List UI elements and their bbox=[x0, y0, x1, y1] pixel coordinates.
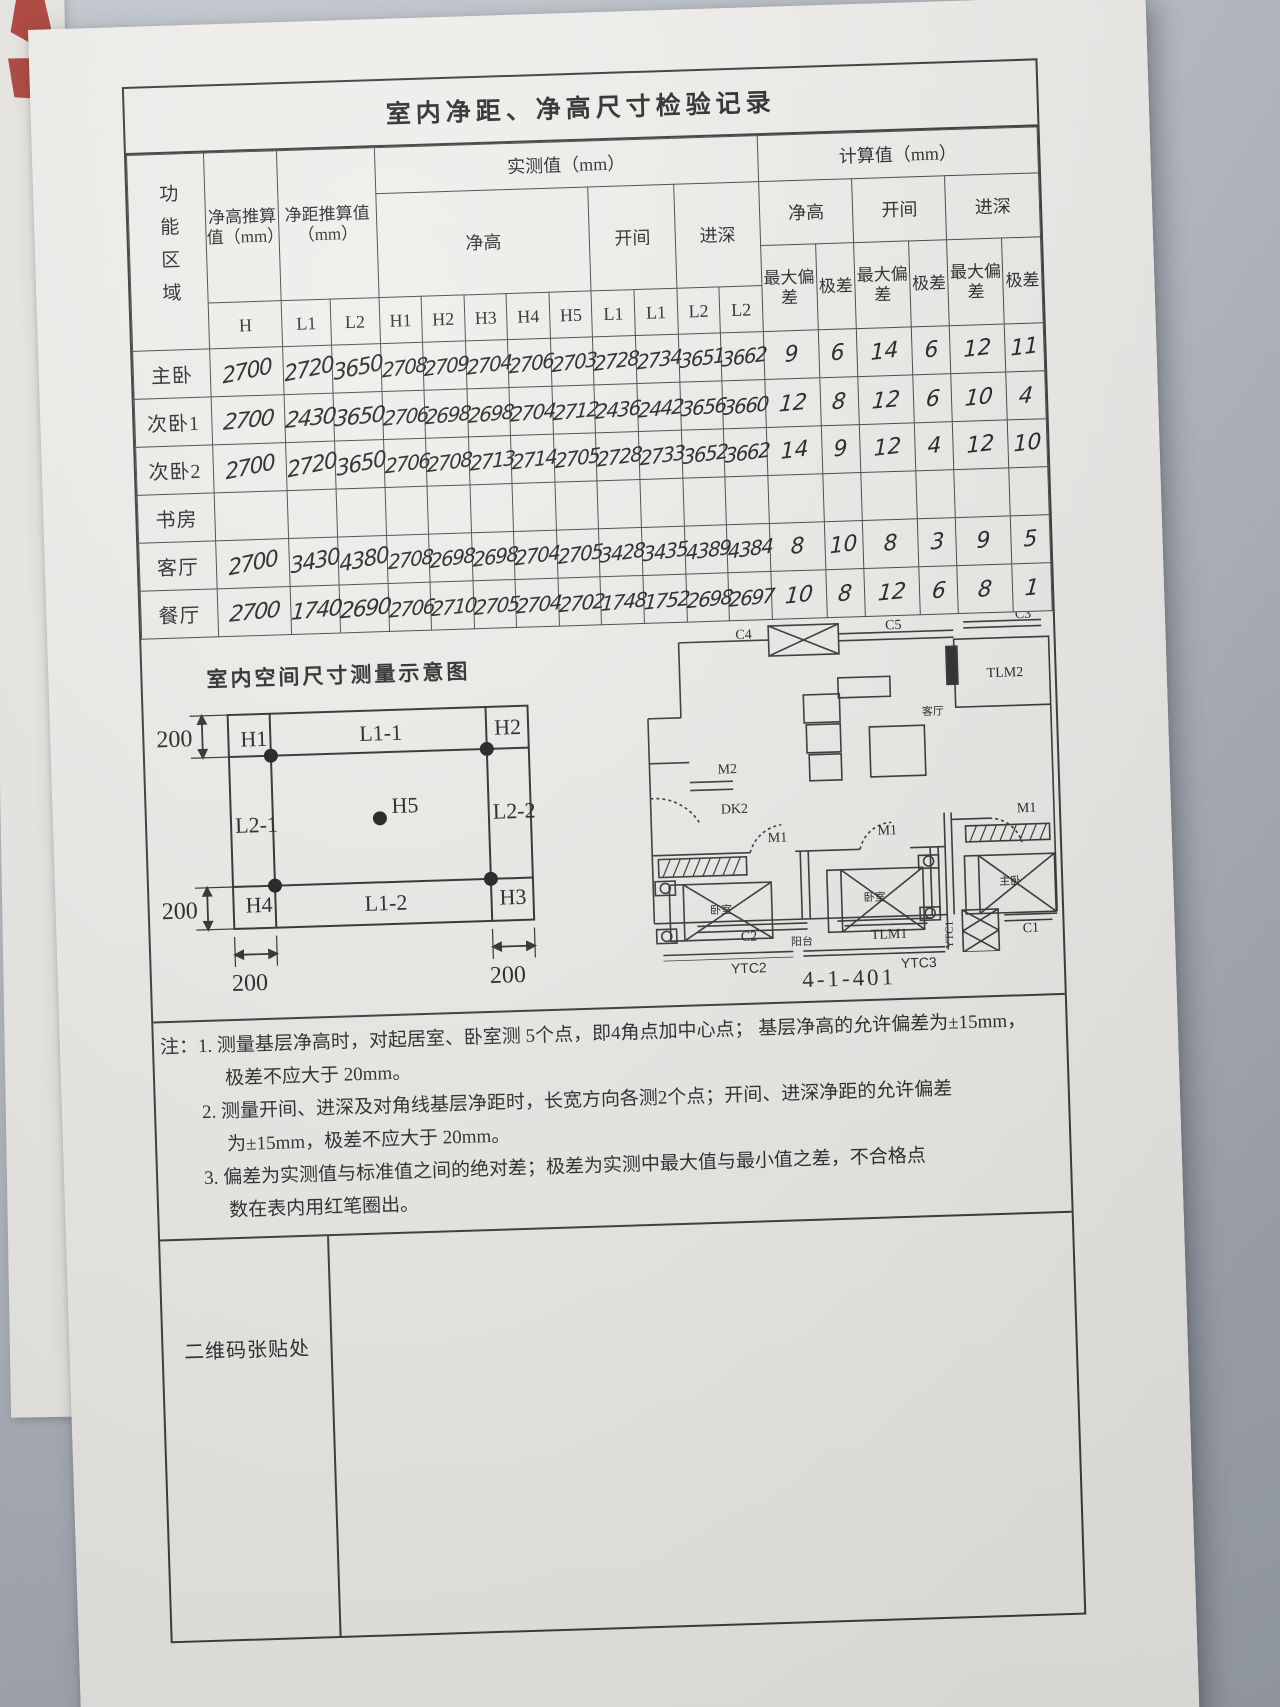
handwritten-value: 6 bbox=[925, 386, 941, 413]
dim-200-bottom-left: 200 bbox=[161, 898, 198, 925]
handwritten-value: 2710 bbox=[430, 592, 477, 621]
plan-label-balcony: 阳台 bbox=[791, 934, 813, 949]
handwritten-value: 9 bbox=[977, 527, 991, 554]
value-cell: 14 bbox=[766, 426, 822, 476]
value-cell: 2697 bbox=[728, 571, 772, 620]
value-cell: 2704 bbox=[514, 530, 558, 579]
value-cell: 14 bbox=[856, 327, 912, 377]
handwritten-value: 2720 bbox=[284, 352, 335, 387]
value-cell: 2720 bbox=[283, 345, 333, 395]
handwritten-value: 12 bbox=[967, 431, 995, 460]
value-cell: 1748 bbox=[600, 575, 644, 624]
group-measured-bay: 开间 bbox=[588, 184, 676, 291]
handwritten-value: 1740 bbox=[290, 596, 342, 626]
handwritten-value: 8 bbox=[831, 389, 847, 416]
handwritten-value: 8 bbox=[790, 533, 804, 560]
header-max-deviation: 最大偏差 bbox=[947, 238, 1004, 326]
value-cell: 1752 bbox=[643, 574, 687, 623]
handwritten-value: 2706 bbox=[384, 448, 429, 478]
handwritten-value: 3435 bbox=[643, 536, 688, 566]
value-cell: 3650 bbox=[331, 344, 381, 394]
function-area-label: 客厅 bbox=[139, 541, 218, 591]
handwritten-value: 3662 bbox=[722, 341, 767, 371]
sub-header: H1 bbox=[379, 296, 423, 343]
handwritten-value: 2708 bbox=[427, 446, 472, 476]
sub-header: H bbox=[208, 301, 282, 349]
value-cell: 2705 bbox=[556, 529, 600, 578]
handwritten-value: 2430 bbox=[284, 404, 336, 434]
plan-label-c4: C4 bbox=[735, 628, 752, 644]
value-cell: 2708 bbox=[426, 437, 470, 486]
value-cell: 2700 bbox=[213, 443, 288, 493]
value-cell: 3435 bbox=[641, 526, 685, 575]
value-cell: 2734 bbox=[635, 334, 679, 383]
function-area-label: 书房 bbox=[137, 493, 216, 543]
value-cell: 3428 bbox=[599, 527, 643, 576]
handwritten-value: 10 bbox=[1014, 429, 1042, 458]
handwritten-value: 2705 bbox=[555, 442, 600, 472]
diagram-length-l2-1: L2-1 bbox=[235, 812, 279, 838]
value-cell: 2706 bbox=[508, 338, 552, 387]
handwritten-value: 12 bbox=[964, 335, 992, 364]
handwritten-value: 2698 bbox=[467, 399, 514, 428]
handwritten-value: 2700 bbox=[228, 597, 280, 627]
value-cell: 2714 bbox=[511, 434, 555, 483]
value-cell: 2706 bbox=[388, 582, 432, 631]
value-cell bbox=[683, 477, 727, 526]
handwritten-value: 2690 bbox=[339, 594, 391, 624]
value-cell: 2700 bbox=[211, 395, 286, 445]
value-cell: 2713 bbox=[468, 436, 512, 485]
plan-caption: 4-1-401 bbox=[634, 959, 1065, 998]
qr-cell-label: 二维码张贴处 bbox=[163, 1331, 331, 1365]
value-cell bbox=[768, 474, 824, 524]
qr-code-cell: 二维码张贴处 bbox=[160, 1236, 341, 1641]
handwritten-value: 4389 bbox=[685, 534, 730, 564]
handwritten-value: 2708 bbox=[381, 352, 426, 382]
value-cell bbox=[512, 482, 556, 531]
handwritten-value: 12 bbox=[877, 579, 907, 607]
value-cell bbox=[470, 484, 514, 533]
dim-200-top-left: 200 bbox=[156, 726, 193, 753]
value-cell: 2705 bbox=[553, 433, 597, 482]
value-cell bbox=[725, 475, 769, 524]
value-cell: 2710 bbox=[430, 581, 474, 630]
measurement-table: 功能区域 净高推算值（mm） 净距推算值（mm） 实测值（mm） 计算值（mm）… bbox=[126, 126, 1053, 639]
value-cell: 12 bbox=[953, 420, 1009, 470]
value-cell: 2702 bbox=[558, 577, 602, 626]
handwritten-value: 2705 bbox=[558, 538, 603, 568]
handwritten-value: 2703 bbox=[552, 346, 597, 376]
value-cell: 2708 bbox=[380, 342, 424, 391]
value-cell: 4 bbox=[914, 422, 954, 471]
function-area-label: 餐厅 bbox=[140, 589, 219, 639]
value-cell: 2698 bbox=[686, 573, 730, 622]
handwritten-value: 4 bbox=[927, 433, 941, 460]
diagram-point-h5: H5 bbox=[391, 792, 419, 818]
handwritten-value: 2728 bbox=[597, 441, 642, 471]
handwritten-value: 2706 bbox=[509, 348, 554, 378]
value-cell: 5 bbox=[1010, 515, 1050, 564]
value-cell bbox=[916, 470, 956, 519]
value-cell: 2705 bbox=[473, 579, 517, 628]
value-cell: 2728 bbox=[593, 336, 637, 385]
plan-label-m2: M2 bbox=[717, 762, 737, 778]
inspection-form-paper: 室内净距、净高尺寸检验记录 功能区域 净高推算值（mm） 净距推算值（mm） 实… bbox=[28, 0, 1202, 1707]
value-cell bbox=[640, 478, 684, 527]
diagram-point-h1: H1 bbox=[240, 726, 268, 752]
plan-label-dk2: DK2 bbox=[721, 802, 749, 818]
function-area-label: 次卧1 bbox=[134, 397, 213, 447]
handwritten-value: 2704 bbox=[515, 540, 560, 570]
value-cell bbox=[597, 479, 641, 528]
value-cell: 6 bbox=[919, 566, 959, 615]
blank-cell bbox=[329, 1213, 1084, 1636]
value-cell: 2698 bbox=[424, 389, 468, 438]
value-cell: 2712 bbox=[552, 385, 596, 434]
dim-200-bottom-2: 200 bbox=[490, 962, 527, 989]
sub-header: L2 bbox=[677, 287, 721, 334]
value-cell bbox=[954, 468, 1010, 518]
value-cell bbox=[861, 471, 917, 521]
value-cell: 2698 bbox=[471, 531, 515, 580]
value-cell: 3652 bbox=[681, 429, 725, 478]
handwritten-value: 2436 bbox=[595, 395, 642, 424]
value-cell: 9 bbox=[821, 425, 861, 474]
plan-label-c1: C1 bbox=[1022, 921, 1039, 937]
handwritten-value: 4 bbox=[1018, 383, 1034, 410]
group-computed-height: 净高 bbox=[759, 179, 854, 246]
value-cell: 2733 bbox=[638, 430, 682, 479]
plan-label-master-bedroom: 主卧 bbox=[999, 874, 1021, 888]
value-cell: 2698 bbox=[467, 388, 511, 437]
diagram-point-h2: H2 bbox=[494, 714, 522, 740]
col-header-height-calc: 净高推算值（mm） bbox=[204, 151, 282, 303]
handwritten-value: 11 bbox=[1011, 333, 1039, 362]
function-area-label: 次卧2 bbox=[136, 445, 215, 495]
value-cell: 12 bbox=[858, 375, 914, 425]
value-cell: 2709 bbox=[423, 341, 467, 390]
group-computed-depth: 进深 bbox=[945, 173, 1040, 240]
handwritten-value: 1748 bbox=[601, 587, 648, 616]
handwritten-value: 2698 bbox=[686, 584, 733, 613]
value-cell: 2708 bbox=[386, 534, 430, 583]
handwritten-value: 9 bbox=[784, 341, 798, 368]
handwritten-value: 2706 bbox=[382, 401, 429, 430]
value-cell bbox=[336, 488, 386, 538]
handwritten-value: 2709 bbox=[424, 350, 469, 380]
handwritten-value: 8 bbox=[977, 576, 993, 603]
value-cell: 8 bbox=[957, 564, 1013, 614]
value-cell: 2700 bbox=[216, 539, 291, 589]
handwritten-value: 2704 bbox=[509, 397, 556, 426]
sub-header: H3 bbox=[464, 294, 508, 341]
value-cell: 4384 bbox=[727, 523, 771, 572]
value-cell bbox=[555, 481, 599, 530]
handwritten-value: 1 bbox=[1024, 575, 1040, 602]
plan-label-tlm1: TLM1 bbox=[871, 927, 908, 943]
handwritten-value: 6 bbox=[924, 337, 938, 364]
handwritten-value: 2713 bbox=[469, 445, 514, 475]
value-cell: 2700 bbox=[217, 587, 292, 637]
value-cell: 8 bbox=[819, 377, 859, 426]
value-cell: 11 bbox=[1004, 323, 1044, 372]
value-cell: 10 bbox=[1007, 419, 1047, 468]
handwritten-value: 2704 bbox=[515, 589, 562, 618]
handwritten-value: 2702 bbox=[558, 588, 605, 617]
sub-header: L2 bbox=[719, 286, 763, 333]
handwritten-value: 2728 bbox=[594, 345, 639, 375]
handwritten-value: 12 bbox=[874, 433, 902, 462]
handwritten-value: 3662 bbox=[725, 437, 770, 467]
value-cell: 3430 bbox=[289, 537, 339, 587]
handwritten-value: 2708 bbox=[387, 544, 432, 574]
header-range: 极差 bbox=[815, 243, 856, 330]
group-measured-height: 净高 bbox=[375, 187, 591, 298]
plan-label-tlm2: TLM2 bbox=[986, 665, 1023, 681]
handwritten-value: 2697 bbox=[728, 583, 775, 612]
value-cell: 1740 bbox=[290, 585, 340, 635]
plan-label-m1: M1 bbox=[1017, 801, 1037, 817]
function-area-label: 主卧 bbox=[133, 349, 212, 399]
notes-section: 注：1. 测量基层净高时，对起居室、卧室测 5个点，即4角点加中心点； 基层净高… bbox=[153, 995, 1071, 1242]
value-cell: 6 bbox=[818, 329, 858, 378]
diagram-point-h4: H4 bbox=[245, 892, 273, 918]
handwritten-value: 12 bbox=[778, 390, 808, 418]
handwritten-value: 2733 bbox=[640, 440, 685, 470]
sub-header: L1 bbox=[591, 290, 635, 337]
handwritten-value: 6 bbox=[931, 578, 947, 605]
sub-header: L1 bbox=[634, 288, 678, 335]
handwritten-value: 10 bbox=[784, 581, 814, 609]
plan-label-bedroom: 卧室 bbox=[863, 889, 885, 904]
value-cell: 2690 bbox=[339, 583, 389, 633]
handwritten-value: 2734 bbox=[637, 344, 682, 374]
header-max-deviation: 最大偏差 bbox=[761, 244, 818, 332]
handwritten-value: 2700 bbox=[222, 406, 274, 436]
handwritten-value: 2700 bbox=[225, 450, 276, 485]
plan-label-ytc1: YTC1 bbox=[943, 921, 956, 949]
value-cell: 3650 bbox=[333, 392, 383, 442]
footer-section: 二维码张贴处 bbox=[160, 1213, 1084, 1641]
handwritten-value: 12 bbox=[871, 387, 901, 415]
handwritten-value: 8 bbox=[837, 581, 853, 608]
value-cell bbox=[287, 489, 337, 539]
value-cell: 2706 bbox=[383, 438, 427, 487]
handwritten-value: 3430 bbox=[290, 544, 341, 579]
handwritten-value: 4384 bbox=[728, 533, 773, 563]
diagram-length-l1-2: L1-2 bbox=[364, 890, 408, 916]
value-cell bbox=[822, 473, 862, 522]
plan-label-m1: M1 bbox=[877, 823, 897, 839]
value-cell: 8 bbox=[863, 519, 919, 569]
handwritten-value: 2698 bbox=[472, 541, 517, 571]
header-range: 极差 bbox=[1002, 237, 1043, 324]
handwritten-value: 2705 bbox=[473, 591, 520, 620]
dim-200-bottom-1: 200 bbox=[232, 970, 269, 997]
value-cell: 10 bbox=[951, 372, 1007, 422]
middle-section: 室内空间尺寸测量示意图 bbox=[141, 611, 1065, 1023]
value-cell: 2728 bbox=[596, 432, 640, 481]
group-computed-bay: 开间 bbox=[852, 176, 947, 243]
photo-scene: 室内净距、净高尺寸检验记录 功能区域 净高推算值（mm） 净距推算值（mm） 实… bbox=[0, 0, 1280, 1707]
form-frame: 室内净距、净高尺寸检验记录 功能区域 净高推算值（mm） 净距推算值（mm） 实… bbox=[122, 58, 1086, 1643]
handwritten-value: 3651 bbox=[679, 342, 724, 372]
value-cell: 2442 bbox=[637, 382, 681, 431]
value-cell: 12 bbox=[950, 324, 1006, 374]
diagram-point-h3: H3 bbox=[499, 884, 527, 910]
handwritten-value: 3 bbox=[930, 529, 944, 556]
value-cell: 3651 bbox=[678, 333, 722, 382]
value-cell bbox=[385, 486, 429, 535]
plan-label-c3: C3 bbox=[1015, 611, 1032, 622]
handwritten-value: 3650 bbox=[335, 447, 386, 482]
value-cell: 12 bbox=[864, 567, 920, 617]
value-cell: 3662 bbox=[721, 332, 765, 381]
value-cell: 12 bbox=[859, 423, 915, 473]
sub-header: H4 bbox=[506, 292, 550, 339]
handwritten-value: 5 bbox=[1024, 526, 1038, 553]
value-cell: 8 bbox=[769, 522, 825, 572]
handwritten-value: 1752 bbox=[643, 585, 690, 614]
value-cell: 1 bbox=[1012, 563, 1052, 612]
value-cell bbox=[1009, 467, 1049, 516]
group-measured-depth: 进深 bbox=[673, 182, 761, 289]
value-cell: 4389 bbox=[684, 525, 728, 574]
value-cell: 2720 bbox=[286, 441, 336, 491]
value-cell: 4 bbox=[1006, 371, 1046, 420]
measurement-diagram: H1 H2 H3 H4 H5 L1-1 L1-2 L2-1 L2-2 bbox=[143, 681, 631, 1008]
handwritten-value: 14 bbox=[780, 436, 808, 465]
handwritten-value: 2700 bbox=[222, 354, 273, 389]
handwritten-value: 3656 bbox=[680, 392, 727, 421]
handwritten-value: 2698 bbox=[430, 542, 475, 572]
sub-header: L1 bbox=[281, 299, 331, 347]
value-cell: 2430 bbox=[284, 393, 334, 443]
handwritten-value: 9 bbox=[834, 436, 848, 463]
measurement-diagram-panel: 室内空间尺寸测量示意图 bbox=[141, 625, 635, 1022]
value-cell: 3660 bbox=[722, 380, 766, 429]
value-cell: 12 bbox=[765, 378, 821, 428]
handwritten-value: 3428 bbox=[600, 537, 645, 567]
col-header-clearance-calc: 净距推算值（mm） bbox=[277, 148, 379, 301]
handwritten-value: 4380 bbox=[338, 543, 389, 578]
value-cell: 2706 bbox=[382, 390, 426, 439]
handwritten-value: 3650 bbox=[332, 351, 383, 386]
value-cell: 6 bbox=[913, 374, 953, 423]
plan-label-living-room: 客厅 bbox=[922, 704, 944, 719]
handwritten-value: 2720 bbox=[287, 448, 338, 483]
value-cell bbox=[427, 485, 471, 534]
value-cell: 10 bbox=[771, 570, 827, 620]
sub-header: L2 bbox=[330, 298, 380, 346]
handwritten-value: 3652 bbox=[682, 438, 727, 468]
handwritten-value: 2442 bbox=[637, 393, 684, 422]
handwritten-value: 2714 bbox=[512, 444, 557, 474]
handwritten-value: 8 bbox=[884, 530, 898, 557]
handwritten-value: 2698 bbox=[424, 400, 471, 429]
diagram-length-l1-1: L1-1 bbox=[359, 720, 403, 746]
value-cell: 3656 bbox=[680, 381, 724, 430]
handwritten-value: 2700 bbox=[228, 546, 279, 581]
header-range: 极差 bbox=[909, 240, 950, 327]
value-cell: 2704 bbox=[515, 578, 559, 627]
value-cell: 2704 bbox=[509, 386, 553, 435]
value-cell: 2700 bbox=[210, 347, 285, 397]
handwritten-value: 2704 bbox=[466, 349, 511, 379]
value-cell: 3650 bbox=[334, 440, 384, 490]
col-header-function-area: 功能区域 bbox=[126, 153, 209, 351]
value-cell: 3662 bbox=[724, 428, 768, 477]
diagram-length-l2-2: L2-2 bbox=[492, 797, 536, 823]
plan-label-bedroom: 卧室 bbox=[710, 902, 732, 917]
value-cell: 4380 bbox=[337, 536, 387, 586]
value-cell: 9 bbox=[956, 516, 1012, 566]
handwritten-value: 3660 bbox=[722, 391, 769, 420]
value-cell: 6 bbox=[911, 326, 951, 375]
plan-label-c2: C2 bbox=[741, 930, 758, 946]
header-max-deviation: 最大偏差 bbox=[854, 241, 911, 329]
value-cell: 8 bbox=[826, 569, 866, 618]
plan-label-c5: C5 bbox=[885, 618, 902, 634]
handwritten-value: 10 bbox=[964, 384, 994, 412]
value-cell bbox=[214, 491, 289, 541]
page-title: 室内净距、净高尺寸检验记录 bbox=[385, 83, 776, 131]
value-cell: 10 bbox=[824, 521, 864, 570]
sub-header: H2 bbox=[421, 295, 465, 342]
floor-plan-drawing: C4 C5 C3 TLM2 M2 DK2 M1 M1 M1 C2 TLM1 C1 bbox=[623, 611, 1063, 962]
handwritten-value: 6 bbox=[831, 340, 845, 367]
value-cell: 2698 bbox=[429, 533, 473, 582]
handwritten-value: 2712 bbox=[552, 396, 599, 425]
value-cell: 9 bbox=[763, 330, 819, 380]
handwritten-value: 3650 bbox=[333, 402, 385, 432]
floor-plan-panel: C4 C5 C3 TLM2 M2 DK2 M1 M1 M1 C2 TLM1 C1 bbox=[623, 611, 1065, 1006]
handwritten-value: 10 bbox=[830, 531, 858, 560]
value-cell: 3 bbox=[917, 518, 957, 567]
sub-header: H5 bbox=[549, 291, 593, 338]
handwritten-value: 14 bbox=[871, 338, 899, 367]
handwritten-value: 2706 bbox=[388, 593, 435, 622]
value-cell: 2704 bbox=[465, 340, 509, 389]
plan-label-m1: M1 bbox=[768, 831, 788, 847]
value-cell: 2436 bbox=[594, 384, 638, 433]
value-cell: 2703 bbox=[550, 337, 594, 386]
